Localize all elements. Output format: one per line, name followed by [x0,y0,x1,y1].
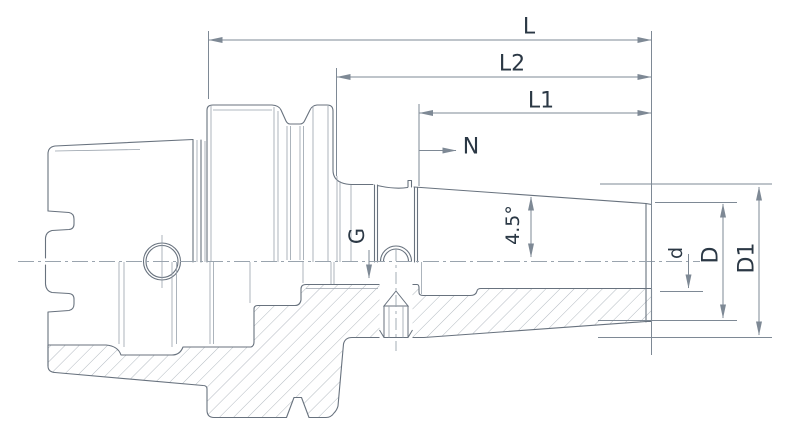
section-hatch [48,283,652,418]
dim-label-L1: L1 [528,89,554,114]
shank-outline [46,140,202,367]
dim-label-L: L [523,15,535,40]
flange-outline [207,105,418,262]
tool-holder-drawing-page: L L2 L1 N G 4.5° d D D1 [0,0,812,441]
flange-thin-lines [211,106,351,262]
tool-holder-drawing [0,0,812,441]
dim-label-D1: D1 [735,243,760,274]
dim-label-L2: L2 [499,52,525,77]
dim-label-D: D [699,247,724,264]
dim-label-N: N [463,135,479,160]
dim-label-taper-angle: 4.5° [502,205,524,245]
dim-label-G: G [345,228,369,244]
dim-label-d: d [665,247,687,259]
